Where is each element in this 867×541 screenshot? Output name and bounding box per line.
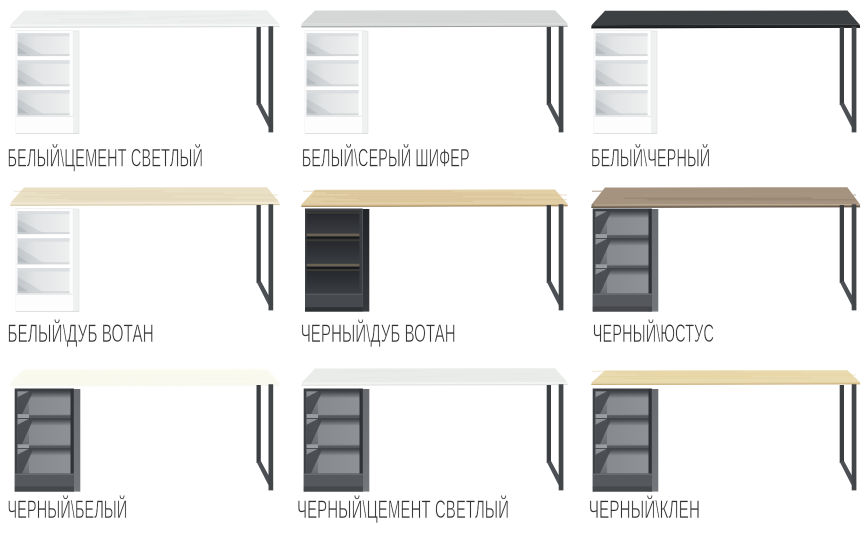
svg-text:ЧЕРНЫЙ\ЦЕМЕНТ СВЕТЛЫЙ: ЧЕРНЫЙ\ЦЕМЕНТ СВЕТЛЫЙ: [297, 494, 509, 524]
svg-text:ЧЕРНЫЙ\ДУБ ВОТАН: ЧЕРНЫЙ\ДУБ ВОТАН: [301, 318, 456, 348]
svg-text:БЕЛЫЙ\ЧЕРНЫЙ: БЕЛЫЙ\ЧЕРНЫЙ: [591, 143, 710, 173]
svg-text:БЕЛЫЙ\ЦЕМЕНТ СВЕТЛЫЙ: БЕЛЫЙ\ЦЕМЕНТ СВЕТЛЫЙ: [7, 143, 203, 173]
svg-text:ЧЕРНЫЙ\КЛЕН: ЧЕРНЫЙ\КЛЕН: [589, 494, 700, 524]
svg-text:БЕЛЫЙ\ДУБ ВОТАН: БЕЛЫЙ\ДУБ ВОТАН: [7, 318, 153, 348]
svg-text:ЧЕРНЫЙ\ЮСТУС: ЧЕРНЫЙ\ЮСТУС: [593, 318, 714, 348]
svg-text:ЧЕРНЫЙ\БЕЛЫЙ: ЧЕРНЫЙ\БЕЛЫЙ: [7, 494, 127, 524]
svg-text:БЕЛЫЙ\СЕРЫЙ ШИФЕР: БЕЛЫЙ\СЕРЫЙ ШИФЕР: [302, 143, 470, 173]
